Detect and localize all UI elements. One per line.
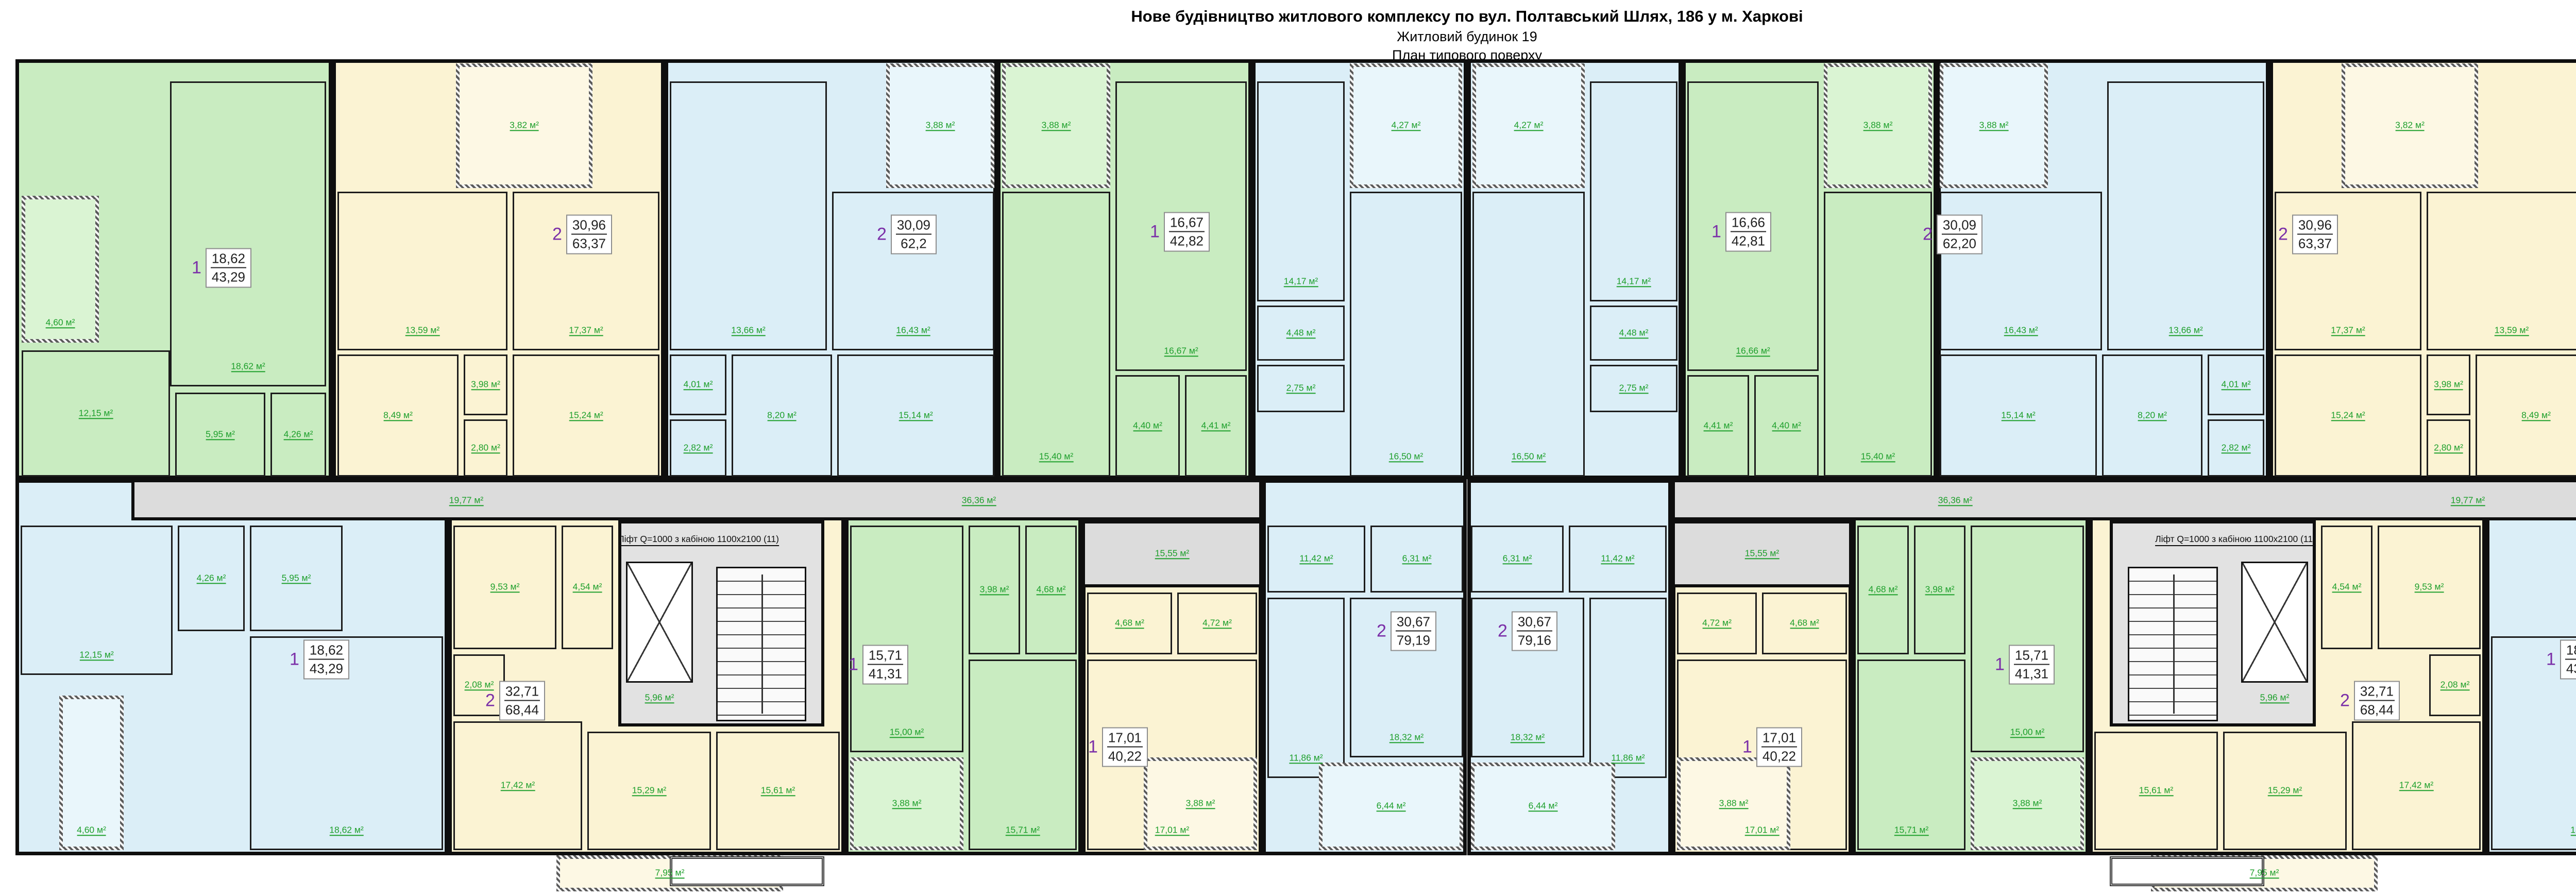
apartment-area-box: 18,6243,29 (2560, 640, 2576, 680)
room-area-label: 8,49 м² (383, 410, 413, 421)
apartment-rooms-count: 1 (1150, 222, 1160, 242)
living-area-value: 16,66 (1731, 215, 1766, 232)
total-area-value: 79,19 (1396, 632, 1431, 649)
total-area-value: 42,82 (1169, 232, 1205, 249)
room-area-label: 5,95 м² (206, 429, 235, 440)
total-area-value: 63,37 (571, 235, 607, 252)
room-area-label: 8,49 м² (2521, 410, 2551, 421)
room-area-label: 2,80 м² (2434, 443, 2463, 453)
room-area-label: 4,01 м² (2222, 379, 2251, 390)
room-area-label: 7,95 м² (655, 868, 685, 878)
room-16-50m2[interactable] (1472, 192, 1585, 477)
living-area-value: 15,71 (2014, 648, 2049, 665)
room-11-86m2[interactable] (1589, 598, 1667, 778)
apartment-summary-top-green-midright: 116,6642,81 (1711, 212, 1771, 252)
elevator-area-label: 5,96 м² (2260, 692, 2290, 703)
apartment-rooms-count: 2 (552, 225, 562, 245)
living-area-value: 18,62 (2565, 643, 2576, 660)
room-area-label: 3,88 м² (1719, 798, 1749, 809)
apartment-area-box: 30,0962,20 (1937, 215, 1982, 255)
room-15-00m2[interactable] (1971, 526, 2084, 752)
room-area-label: 13,59 м² (405, 325, 440, 336)
entrance-porch[interactable] (2110, 856, 2264, 886)
room-area-label: 18,62 м² (2570, 825, 2576, 836)
room-area-label: 4,40 м² (1133, 420, 1162, 431)
room-area-label: 3,98 м² (2434, 379, 2463, 390)
room-area-label: 18,32 м² (1511, 732, 1545, 743)
room-area-label: 17,01 м² (1155, 825, 1190, 836)
room-area-label: 4,72 м² (1702, 618, 1732, 629)
total-area-value: 43,29 (2565, 660, 2576, 677)
room-area-label: 4,41 м² (1201, 420, 1231, 431)
total-area-value: 79,16 (1517, 632, 1552, 649)
room-area-label: 4,27 м² (1392, 120, 1421, 131)
room-11-86m2[interactable] (1267, 598, 1345, 778)
room-area-label: 2,80 м² (471, 443, 500, 453)
plan-title: Нове будівництво житлового комплексу по … (0, 7, 2576, 26)
apartment-area-box: 30,9663,37 (566, 215, 612, 255)
room-13-66m2[interactable] (670, 81, 827, 350)
room-area-label: 3,88 м² (926, 120, 955, 131)
room-area-label: 9,53 м² (490, 582, 520, 593)
apartment-rooms-count: 2 (1377, 621, 1386, 641)
entrance-porch[interactable] (670, 856, 824, 886)
apartment-summary-top-green-midleft: 116,6742,82 (1150, 212, 1210, 252)
total-area-value: 40,22 (1107, 748, 1143, 765)
room-area-label: 15,71 м² (1006, 825, 1040, 836)
plan-subtitle-building: Житловий будинок 19 (0, 29, 2576, 45)
apartment-summary-bottom-blue-center-right: 230,6779,16 (1498, 612, 1557, 651)
apartment-area-box: 18,6243,29 (303, 640, 349, 680)
room-area-label: 4,72 м² (1202, 618, 1232, 629)
living-area-value: 32,71 (2359, 684, 2395, 701)
room-area-label: 12,15 м² (79, 650, 114, 661)
room-area-label: 4,68 м² (1790, 618, 1819, 629)
apartment-summary-top-yellow-left: 230,9663,37 (552, 215, 612, 255)
corridor-area-label: 15,55 м² (1155, 548, 1190, 559)
apartment-rooms-count: 2 (877, 225, 887, 245)
apartment-rooms-count: 2 (2278, 225, 2288, 245)
apartment-rooms-count: 1 (1995, 655, 2005, 675)
apartment-area-box: 17,0140,22 (1102, 728, 1148, 767)
room-area-label: 4,54 м² (573, 582, 602, 593)
room-area-label: 6,44 м² (1529, 801, 1558, 812)
room-area-label: 3,82 м² (2395, 120, 2425, 131)
apartment-summary-bottom-blue-center-left: 230,6779,19 (1377, 612, 1436, 651)
living-area-value: 18,62 (309, 643, 344, 660)
apartment-area-box: 30,6779,19 (1391, 612, 1436, 651)
apartment-rooms-count: 1 (290, 650, 299, 670)
room-area-label: 14,17 м² (1617, 276, 1651, 287)
room-18-62m2[interactable] (170, 81, 326, 386)
apartment-summary-bottom-yellow-left: 232,7168,44 (485, 681, 545, 721)
living-area-value: 15,71 (868, 648, 903, 665)
total-area-value: 62,20 (1942, 235, 1977, 252)
apartment-area-box: 30,0962,2 (891, 215, 937, 255)
apartment-area-box: 17,0140,22 (1756, 728, 1802, 767)
room-area-label: 12,15 м² (79, 408, 113, 419)
room-area-label: 3,88 м² (1186, 798, 1215, 809)
apartment-rooms-count: 1 (1742, 737, 1752, 757)
room-area-label: 6,44 м² (1377, 801, 1406, 812)
apartment-rooms-count: 2 (2340, 691, 2350, 711)
apartment-area-box: 16,6642,81 (1725, 212, 1771, 252)
room-14-17m2[interactable] (1257, 81, 1345, 301)
apartment-summary-bottom-blue-right: 118,6243,29 (2546, 640, 2576, 680)
room-area-label: 4,27 м² (1514, 120, 1544, 131)
total-area-value: 62,2 (896, 235, 931, 252)
total-area-value: 42,81 (1731, 232, 1766, 249)
room-area-label: 16,43 м² (896, 325, 930, 336)
elevator-shaft[interactable] (626, 562, 693, 683)
room-15-00m2[interactable] (850, 526, 963, 752)
apartment-summary-bottom-green-right: 115,7141,31 (1995, 645, 2055, 685)
total-area-value: 43,29 (211, 268, 246, 285)
apartment-rooms-count: 1 (1088, 737, 1098, 757)
apartment-rooms-count: 2 (1923, 225, 1933, 245)
room-area-label: 4,48 м² (1619, 328, 1649, 339)
room-area-label: 15,14 м² (899, 410, 933, 421)
room-14-17m2[interactable] (1590, 81, 1677, 301)
room-15-71m2[interactable] (1857, 660, 1965, 850)
room-area-label: 8,20 м² (2138, 410, 2167, 421)
room-area-label: 15,14 м² (2001, 410, 2036, 421)
room-area-label: 11,86 м² (1611, 753, 1645, 764)
room-area-label: 4,60 м² (46, 317, 75, 328)
total-area-value: 68,44 (504, 701, 540, 718)
corridor-area-label: 36,36 м² (1938, 495, 1973, 506)
room-area-label: 3,88 м² (892, 798, 922, 809)
room-area-label: 8,20 м² (767, 410, 796, 421)
total-area-value: 68,44 (2359, 701, 2395, 718)
apartment-summary-bottom-yellow-midleft: 117,0140,22 (1088, 728, 1148, 767)
room-area-label: 15,24 м² (2331, 410, 2365, 421)
room-16-50m2[interactable] (1350, 192, 1462, 477)
room-area-label: 2,82 м² (2222, 443, 2251, 453)
apartment-area-box: 15,7141,31 (2009, 645, 2055, 685)
corridor-segment[interactable] (1672, 479, 2576, 520)
room-15-40m2[interactable] (1824, 192, 1932, 477)
room-area-label: 17,42 м² (501, 780, 535, 791)
room-area-label: 16,67 м² (1164, 346, 1198, 357)
room-area-label: 15,24 м² (569, 410, 603, 421)
corridor-segment[interactable] (131, 479, 1262, 520)
room-area-label: 3,88 м² (1979, 120, 2009, 131)
room-area-label: 4,40 м² (1772, 420, 1801, 431)
room-area-label: 14,17 м² (1284, 276, 1318, 287)
staircase[interactable] (2128, 567, 2218, 721)
room-area-label: 17,37 м² (2331, 325, 2365, 336)
room-area-label: 18,62 м² (329, 825, 364, 836)
room-area-label: 15,61 м² (761, 785, 795, 796)
room-area-label: 13,66 м² (731, 325, 766, 336)
room-area-label: 15,29 м² (632, 785, 667, 796)
room-area-label: 11,86 м² (1289, 753, 1323, 764)
room-area-label: 4,54 м² (2332, 582, 2362, 593)
apartment-rooms-count: 2 (485, 691, 495, 711)
corridor-area-label: 15,55 м² (1745, 548, 1780, 559)
living-area-value: 30,96 (571, 217, 607, 235)
room-area-label: 15,71 м² (1894, 825, 1929, 836)
room-area-label: 4,68 м² (1869, 584, 1898, 595)
living-area-value: 30,09 (896, 217, 931, 235)
living-area-value: 16,67 (1169, 215, 1205, 232)
room-area-label: 18,62 м² (231, 361, 265, 372)
living-area-value: 30,67 (1396, 614, 1431, 632)
apartment-rooms-count: 2 (1498, 621, 1507, 641)
room-area-label: 15,61 м² (2139, 785, 2174, 796)
living-area-value: 30,67 (1517, 614, 1552, 632)
room-area-label: 3,98 м² (1925, 584, 1955, 595)
room-area-label: 4,48 м² (1286, 328, 1316, 339)
room-area-label: 4,41 м² (1704, 420, 1733, 431)
apartment-summary-bottom-green-left: 115,7141,31 (849, 645, 908, 685)
room-area-label: 13,66 м² (2168, 325, 2203, 336)
elevator-shaft[interactable] (2241, 562, 2308, 683)
apartment-area-box: 32,7168,44 (2354, 681, 2400, 721)
room-area-label: 6,31 м² (1402, 553, 1432, 564)
living-area-value: 30,96 (2297, 217, 2333, 235)
apartment-summary-top-green-left: 118,6243,29 (192, 248, 251, 288)
room-area-label: 15,29 м² (2268, 785, 2302, 796)
room-area-label: 6,31 м² (1503, 553, 1532, 564)
room-area-label: 4,26 м² (197, 573, 226, 584)
room-area-label: 7,95 м² (2250, 868, 2279, 878)
room-area-label: 18,32 м² (1389, 732, 1424, 743)
living-area-value: 32,71 (504, 684, 540, 701)
room-15-40m2[interactable] (1002, 192, 1110, 477)
apartment-rooms-count: 1 (2546, 650, 2556, 670)
room-area-label: 13,59 м² (2495, 325, 2529, 336)
room-area-label: 15,40 м² (1039, 451, 1074, 462)
staircase[interactable] (716, 567, 806, 721)
apartment-area-box: 15,7141,31 (862, 645, 908, 685)
floor-plan-page: Нове будівництво житлового комплексу по … (0, 0, 2576, 896)
room-area-label: 5,95 м² (282, 573, 311, 584)
apartment-rooms-count: 1 (192, 258, 201, 278)
room-area-label: 11,42 м² (1299, 553, 1333, 564)
room-area-label: 11,42 м² (1601, 553, 1634, 564)
living-area-value: 18,62 (211, 251, 246, 268)
room-area-label: 3,98 м² (471, 379, 500, 390)
room-area-label: 17,01 м² (1745, 825, 1780, 836)
room-area-label: 2,75 м² (1286, 383, 1316, 394)
room-area-label: 15,40 м² (1861, 451, 1895, 462)
apartment-summary-top-yellow-right: 230,9663,37 (2278, 215, 2338, 255)
total-area-value: 63,37 (2297, 235, 2333, 252)
room-area-label: 2,08 м² (2441, 680, 2470, 690)
room-area-label: 15,00 м² (890, 727, 924, 738)
apartment-area-box: 30,6779,16 (1512, 612, 1557, 651)
total-area-value: 40,22 (1761, 748, 1797, 765)
room-15-71m2[interactable] (969, 660, 1077, 850)
room-area-label: 16,50 м² (1389, 451, 1423, 462)
room-area-label: 4,68 м² (1115, 618, 1144, 629)
living-area-value: 17,01 (1761, 730, 1797, 748)
lift-spec-note: Ліфт Q=1000 з кабіною 1100х2100 (11) (618, 534, 779, 546)
room-area-label: 2,82 м² (684, 443, 713, 453)
room-area-label: 16,50 м² (1512, 451, 1546, 462)
room-area-label: 3,88 м² (1863, 120, 1893, 131)
room-area-label: 3,88 м² (1042, 120, 1071, 131)
room-area-label: 2,75 м² (1619, 383, 1649, 394)
apartment-summary-bottom-yellow-midright: 117,0140,22 (1742, 728, 1802, 767)
total-area-value: 41,31 (868, 665, 903, 682)
apartment-area-box: 16,6742,82 (1164, 212, 1210, 252)
apartment-summary-bottom-blue-left: 118,6243,29 (290, 640, 349, 680)
room-area-label: 3,98 м² (980, 584, 1009, 595)
room-area-label: 15,00 м² (2010, 727, 2045, 738)
apartment-area-box: 32,7168,44 (499, 681, 545, 721)
apartment-summary-top-blue-left: 230,0962,2 (877, 215, 937, 255)
room-area-label: 16,66 м² (1736, 346, 1770, 357)
corridor-area-label: 19,77 м² (2451, 495, 2485, 506)
total-area-value: 43,29 (309, 660, 344, 677)
room-13-66m2[interactable] (2107, 81, 2264, 350)
apartment-summary-top-blue-right: 230,0962,20 (1923, 215, 1982, 255)
room-area-label: 4,60 м² (77, 825, 106, 836)
room-area-label: 3,82 м² (510, 120, 539, 131)
apartment-rooms-count: 1 (849, 655, 858, 675)
room-area-label: 16,43 м² (2004, 325, 2038, 336)
corridor-area-label: 19,77 м² (449, 495, 484, 506)
room-area-label: 17,42 м² (2399, 780, 2434, 791)
room-area-label: 4,01 м² (684, 379, 713, 390)
apartment-area-box: 18,6243,29 (206, 248, 251, 288)
living-area-value: 30,09 (1942, 217, 1977, 235)
total-area-value: 41,31 (2014, 665, 2049, 682)
apartment-rooms-count: 1 (1711, 222, 1721, 242)
lift-spec-note: Ліфт Q=1000 з кабіною 1100х2100 (11) (2155, 534, 2316, 546)
living-area-value: 17,01 (1107, 730, 1143, 748)
room-area-label: 3,88 м² (2013, 798, 2042, 809)
elevator-area-label: 5,96 м² (645, 692, 674, 703)
apartment-area-box: 30,9663,37 (2292, 215, 2338, 255)
room-area-label: 4,68 м² (1037, 584, 1066, 595)
room-area-label: 9,53 м² (2415, 582, 2444, 593)
corridor-area-label: 36,36 м² (962, 495, 996, 506)
room-area-label: 4,26 м² (284, 429, 313, 440)
apartment-summary-bottom-yellow-right: 232,7168,44 (2340, 681, 2400, 721)
room-area-label: 17,37 м² (569, 325, 603, 336)
